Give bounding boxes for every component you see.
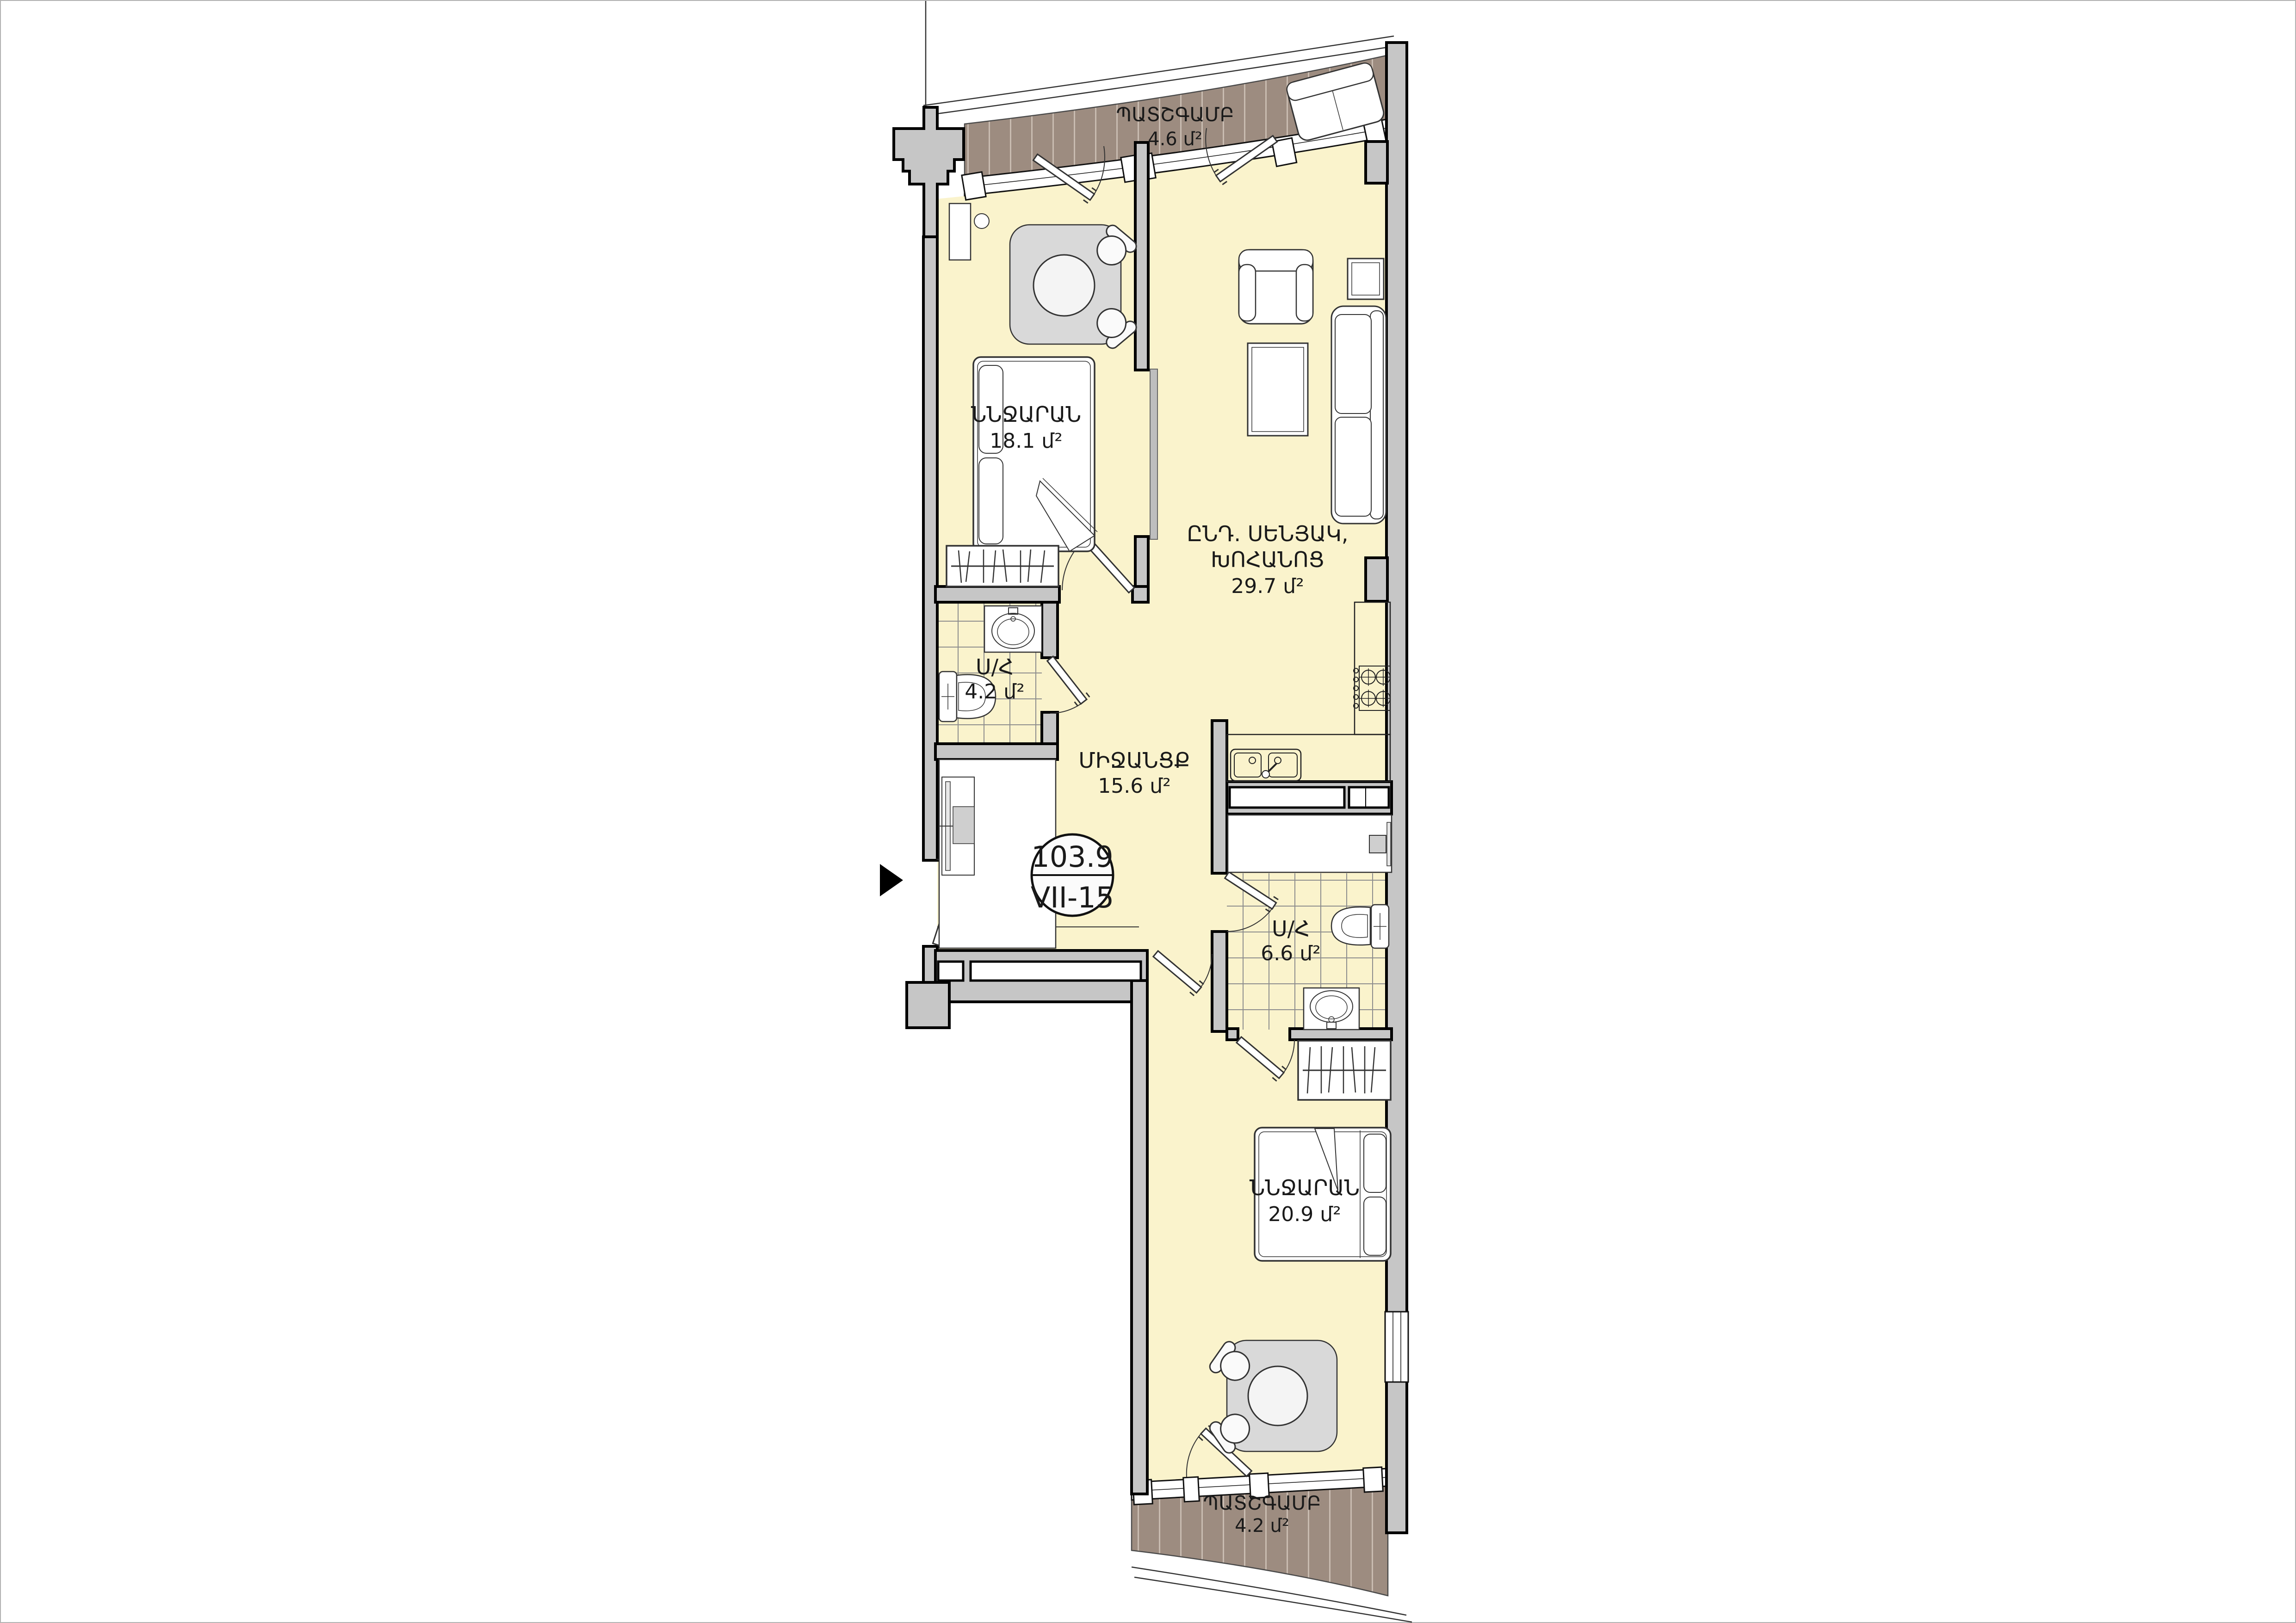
label-living-name-1: ԸՆԴ. ՍԵՆՅԱԿ, xyxy=(1187,521,1349,546)
toilet-icon xyxy=(1331,905,1389,948)
sink-icon xyxy=(984,606,1042,652)
label-bedroom-2-area: 20.9 մ² xyxy=(1268,1203,1341,1226)
round-table-icon xyxy=(1034,255,1095,316)
label-balcony-bottom-name: ՊԱՏՇԳԱՄԲ xyxy=(1203,1492,1321,1514)
label-bedroom-1-area: 18.1 մ² xyxy=(990,429,1062,453)
boiler-icon xyxy=(1369,835,1386,853)
unit-badge: 103.9 VII-15 xyxy=(1031,834,1114,916)
closet-hanger-rail-icon xyxy=(947,546,1058,586)
floor-plan-canvas: 103.9 VII-15 ՊԱՏՇԳԱՄԲ 4.6 մ² ՆՆՋԱՐԱՆ 18.… xyxy=(0,0,2296,1623)
built-in-closet xyxy=(1228,815,1392,872)
round-table-icon xyxy=(1248,1366,1307,1426)
label-bedroom-1-name: ՆՆՋԱՐԱՆ xyxy=(971,402,1081,427)
label-balcony-top-area: 4.6 մ² xyxy=(1148,129,1202,150)
label-living-name-2: ԽՈՀԱՆՈՑ xyxy=(1211,547,1324,572)
label-balcony-bottom-area: 4.2 մ² xyxy=(1235,1515,1289,1537)
label-bathroom-1-area: 4.2 մ² xyxy=(965,680,1025,704)
label-living-area: 29.7 մ² xyxy=(1231,574,1304,598)
sliding-door-panel xyxy=(1150,369,1157,539)
armchair-icon xyxy=(1239,250,1313,324)
side-table-icon xyxy=(1348,259,1384,299)
coffee-table-icon xyxy=(1248,343,1308,436)
label-hallway-name: ՄԻՋԱՆՑՔ xyxy=(1078,748,1190,773)
label-bathroom-2-name: Ս/Հ xyxy=(1272,916,1310,941)
washing-machine-icon xyxy=(939,777,974,875)
label-balcony-top-name: ՊԱՏՇԳԱՄԲ xyxy=(1116,103,1234,126)
bedroom-2-wall-window xyxy=(1385,1312,1408,1382)
wardrobe-hanger-rail-icon xyxy=(1298,1041,1391,1100)
floor-plan-page: 103.9 VII-15 ՊԱՏՇԳԱՄԲ 4.6 մ² ՆՆՋԱՐԱՆ 18.… xyxy=(0,0,2296,1623)
sink-icon xyxy=(1304,988,1359,1030)
badge-total-area: 103.9 xyxy=(1031,840,1114,874)
kitchen-sink-icon xyxy=(1231,749,1301,781)
bed-icon xyxy=(973,357,1097,551)
label-bedroom-2-name: ՆՆՋԱՐԱՆ xyxy=(1250,1175,1360,1200)
label-bathroom-1-name: Ս/Հ xyxy=(976,654,1014,679)
label-bathroom-2-area: 6.6 մ² xyxy=(1261,942,1321,965)
label-hallway-area: 15.6 մ² xyxy=(1098,774,1170,798)
badge-unit-code: VII-15 xyxy=(1031,881,1114,914)
sofa-icon xyxy=(1331,306,1386,524)
